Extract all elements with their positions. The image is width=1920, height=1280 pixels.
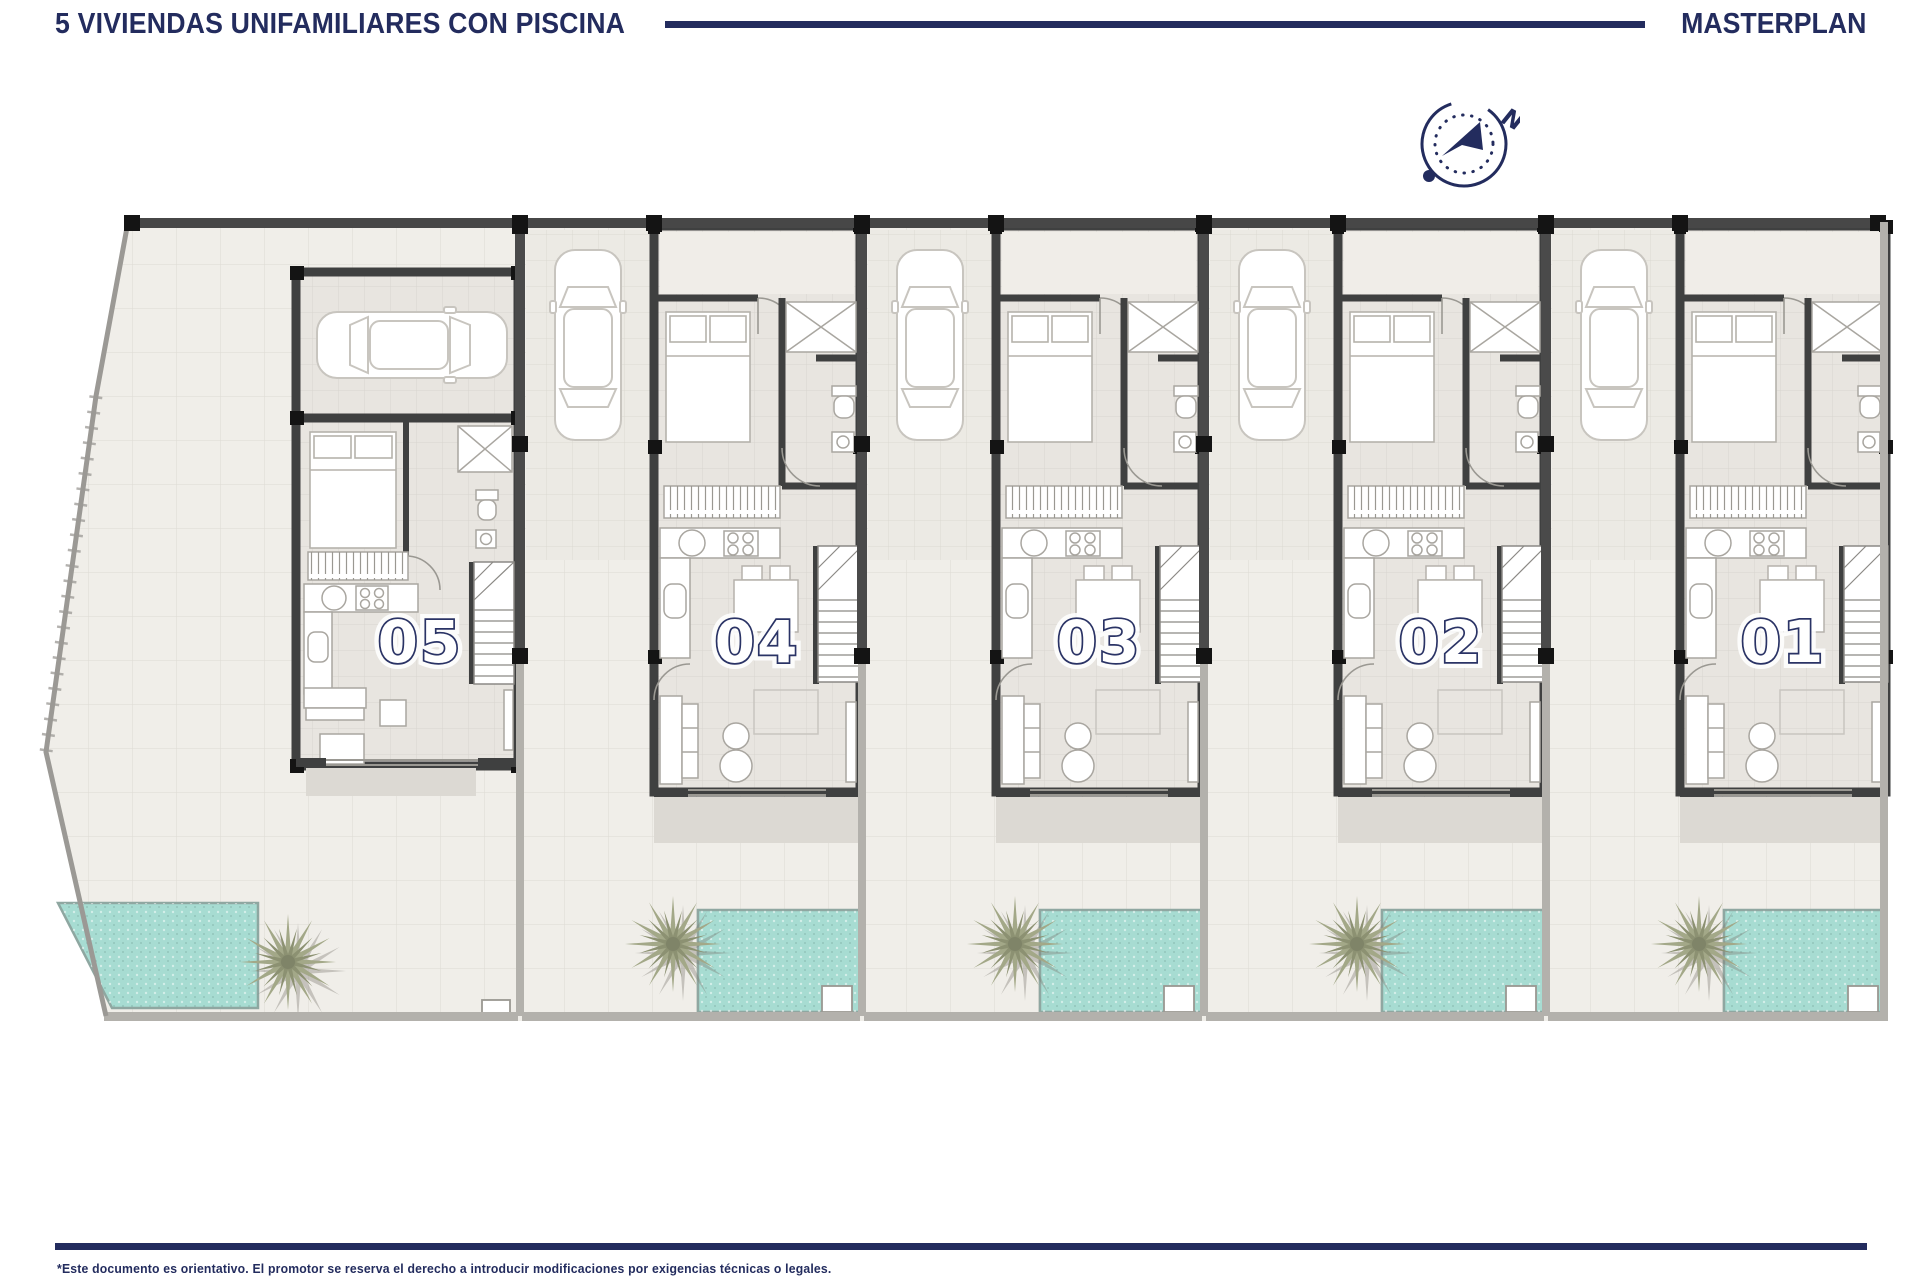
site-right-wall (1880, 222, 1888, 1021)
plot-unit-01 (1538, 218, 1893, 1021)
bedroom-05 (310, 432, 396, 548)
unit-number-02: 02 (1399, 608, 1484, 676)
footer-disclaimer: *Este documento es orientativo. El promo… (57, 1261, 831, 1276)
pool-05 (58, 903, 258, 1008)
plot-unit-04 (512, 218, 867, 1021)
garage-05 (290, 266, 525, 418)
unit-number-03: 03 (1057, 608, 1142, 676)
unit-number-04: 04 (715, 608, 800, 676)
masterplan-page: { "header": { "title": "5 VIVIENDAS UNIF… (0, 0, 1920, 1280)
hall-closet-05 (308, 552, 408, 580)
footer-rule (55, 1243, 1867, 1250)
wardrobe-05 (458, 426, 512, 472)
unit-number-05: 05 (378, 608, 463, 676)
unit-number-01: 01 (1741, 608, 1826, 676)
stairs-05 (472, 562, 514, 684)
plot-unit-02 (1196, 218, 1551, 1021)
garden-fence-05 (104, 1012, 518, 1021)
house-05 (290, 411, 525, 796)
plot-unit-03 (854, 218, 1209, 1021)
terrace-slab-05 (306, 768, 476, 796)
site-plan: 05 05 04 04 03 03 02 02 01 01 (0, 0, 1920, 1280)
